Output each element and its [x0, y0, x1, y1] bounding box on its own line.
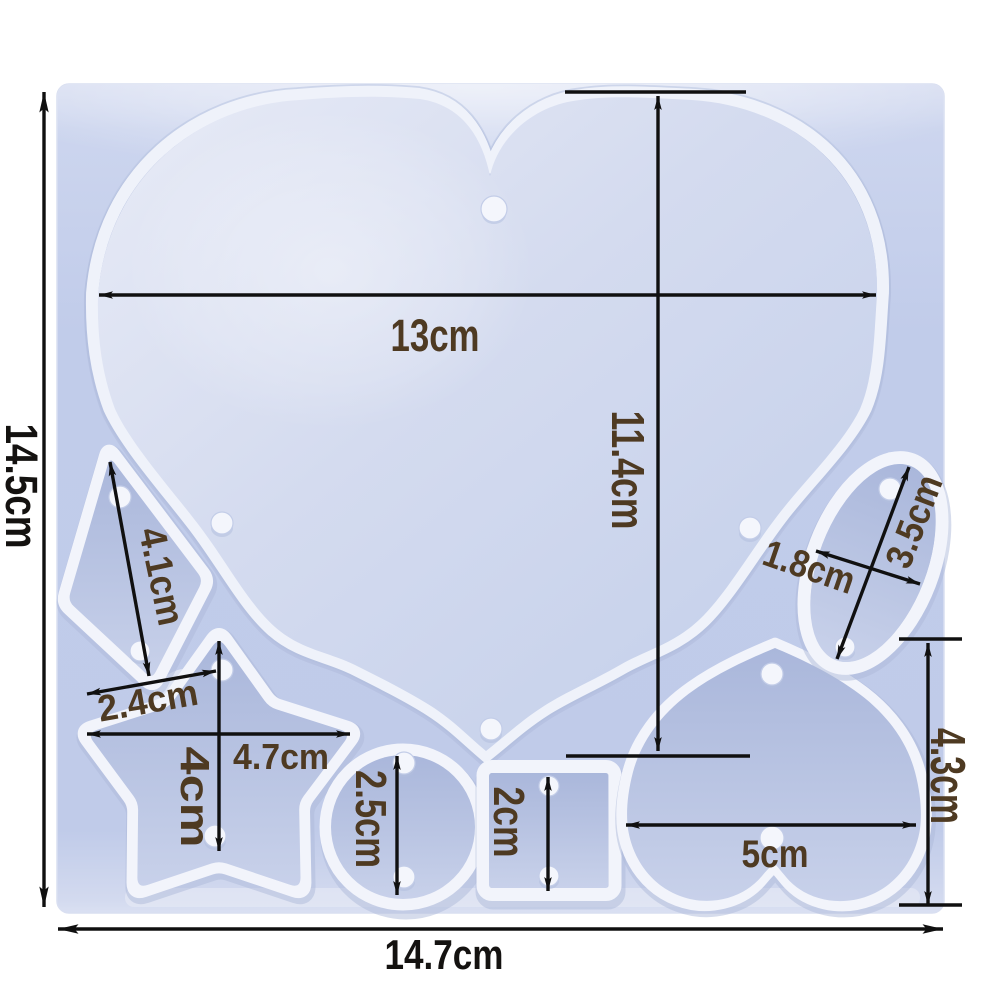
svg-text:5cm: 5cm: [742, 833, 809, 876]
svg-text:2.5cm: 2.5cm: [346, 770, 395, 868]
svg-text:14.5cm: 14.5cm: [0, 424, 47, 549]
svg-text:13cm: 13cm: [391, 310, 480, 361]
svg-text:4cm: 4cm: [172, 747, 218, 848]
svg-text:14.7cm: 14.7cm: [385, 931, 504, 978]
svg-text:11.4cm: 11.4cm: [602, 411, 654, 530]
svg-text:4.7cm: 4.7cm: [233, 736, 329, 777]
svg-text:4.3cm: 4.3cm: [920, 728, 974, 824]
svg-text:2cm: 2cm: [484, 787, 533, 858]
